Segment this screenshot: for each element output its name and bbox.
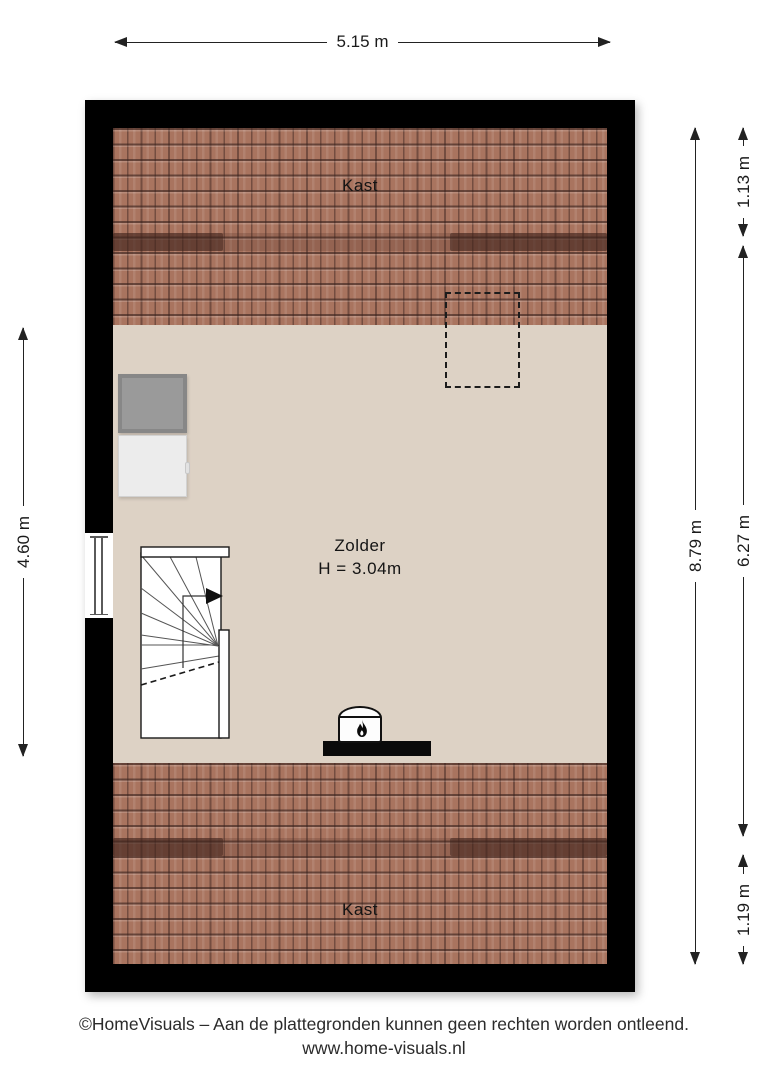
arrow-down-icon — [738, 824, 748, 837]
dimension-label: 1.19 m — [734, 874, 754, 946]
staircase — [138, 544, 233, 742]
dimension-label: 5.15 m — [327, 32, 399, 52]
footer-website: www.home-visuals.nl — [0, 1036, 768, 1060]
knee-wall-segment — [450, 838, 607, 856]
stove-cap-line — [340, 716, 380, 718]
arrow-up-icon — [738, 245, 748, 258]
roof-section-bottom: Kast — [113, 763, 607, 964]
dashed-void-outline — [445, 292, 520, 388]
arrow-down-icon — [738, 224, 748, 237]
arrow-down-icon — [690, 952, 700, 965]
footer-disclaimer: ©HomeVisuals – Aan de plattegronden kunn… — [0, 1012, 768, 1036]
window-frame — [90, 536, 108, 538]
stair-rail — [219, 630, 229, 738]
arrow-up-icon — [690, 127, 700, 140]
room-label-kast-top: Kast — [342, 176, 378, 196]
flame-icon — [352, 719, 372, 741]
floorplan-outer-walls: Kast Kast Zolder H = 3.04m — [85, 100, 635, 992]
hearth-plate — [323, 741, 431, 756]
knee-wall-segment — [450, 233, 607, 251]
roof-section-top: Kast — [113, 128, 607, 325]
appliance-light-unit — [118, 435, 187, 497]
dimension-right-top-segment: 1.13 m — [737, 128, 751, 236]
room-label-zolder: Zolder — [334, 536, 385, 556]
floorplan-interior: Kast Kast Zolder H = 3.04m — [113, 128, 607, 964]
arrow-left-icon — [114, 37, 127, 47]
knee-wall-segment — [113, 233, 223, 251]
arrow-up-icon — [738, 127, 748, 140]
dimension-label: 6.27 m — [734, 505, 754, 577]
window-glazing — [94, 537, 96, 614]
dimension-left-height: 4.60 m — [17, 328, 31, 756]
arrow-up-icon — [738, 854, 748, 867]
window-glazing — [101, 537, 103, 614]
dimension-right-total: 8.79 m — [689, 128, 703, 964]
arrow-right-icon — [598, 37, 611, 47]
arrow-down-icon — [18, 744, 28, 757]
arrow-up-icon — [18, 327, 28, 340]
dimension-label: 1.13 m — [734, 146, 754, 218]
wood-stove — [338, 706, 382, 743]
dimension-top-width: 5.15 m — [115, 36, 610, 50]
dimension-label: 4.60 m — [14, 506, 34, 578]
window-frame — [90, 614, 108, 616]
window — [85, 533, 113, 618]
room-label-kast-bottom: Kast — [342, 900, 378, 920]
appliance-handle — [185, 462, 190, 474]
floorplan-page: 5.15 m 4.60 m 8.79 m 1.13 m 6.27 m 1.19 … — [0, 0, 768, 1086]
room-height-label: H = 3.04m — [318, 559, 401, 579]
footer: ©HomeVisuals – Aan de plattegronden kunn… — [0, 1012, 768, 1060]
landing-edge — [141, 547, 229, 557]
arrow-down-icon — [738, 952, 748, 965]
appliance-dark-unit — [118, 374, 187, 433]
dimension-label: 8.79 m — [686, 510, 706, 582]
dimension-right-bottom-segment: 1.19 m — [737, 855, 751, 964]
dimension-right-middle-segment: 6.27 m — [737, 246, 751, 836]
knee-wall-segment — [113, 838, 223, 856]
